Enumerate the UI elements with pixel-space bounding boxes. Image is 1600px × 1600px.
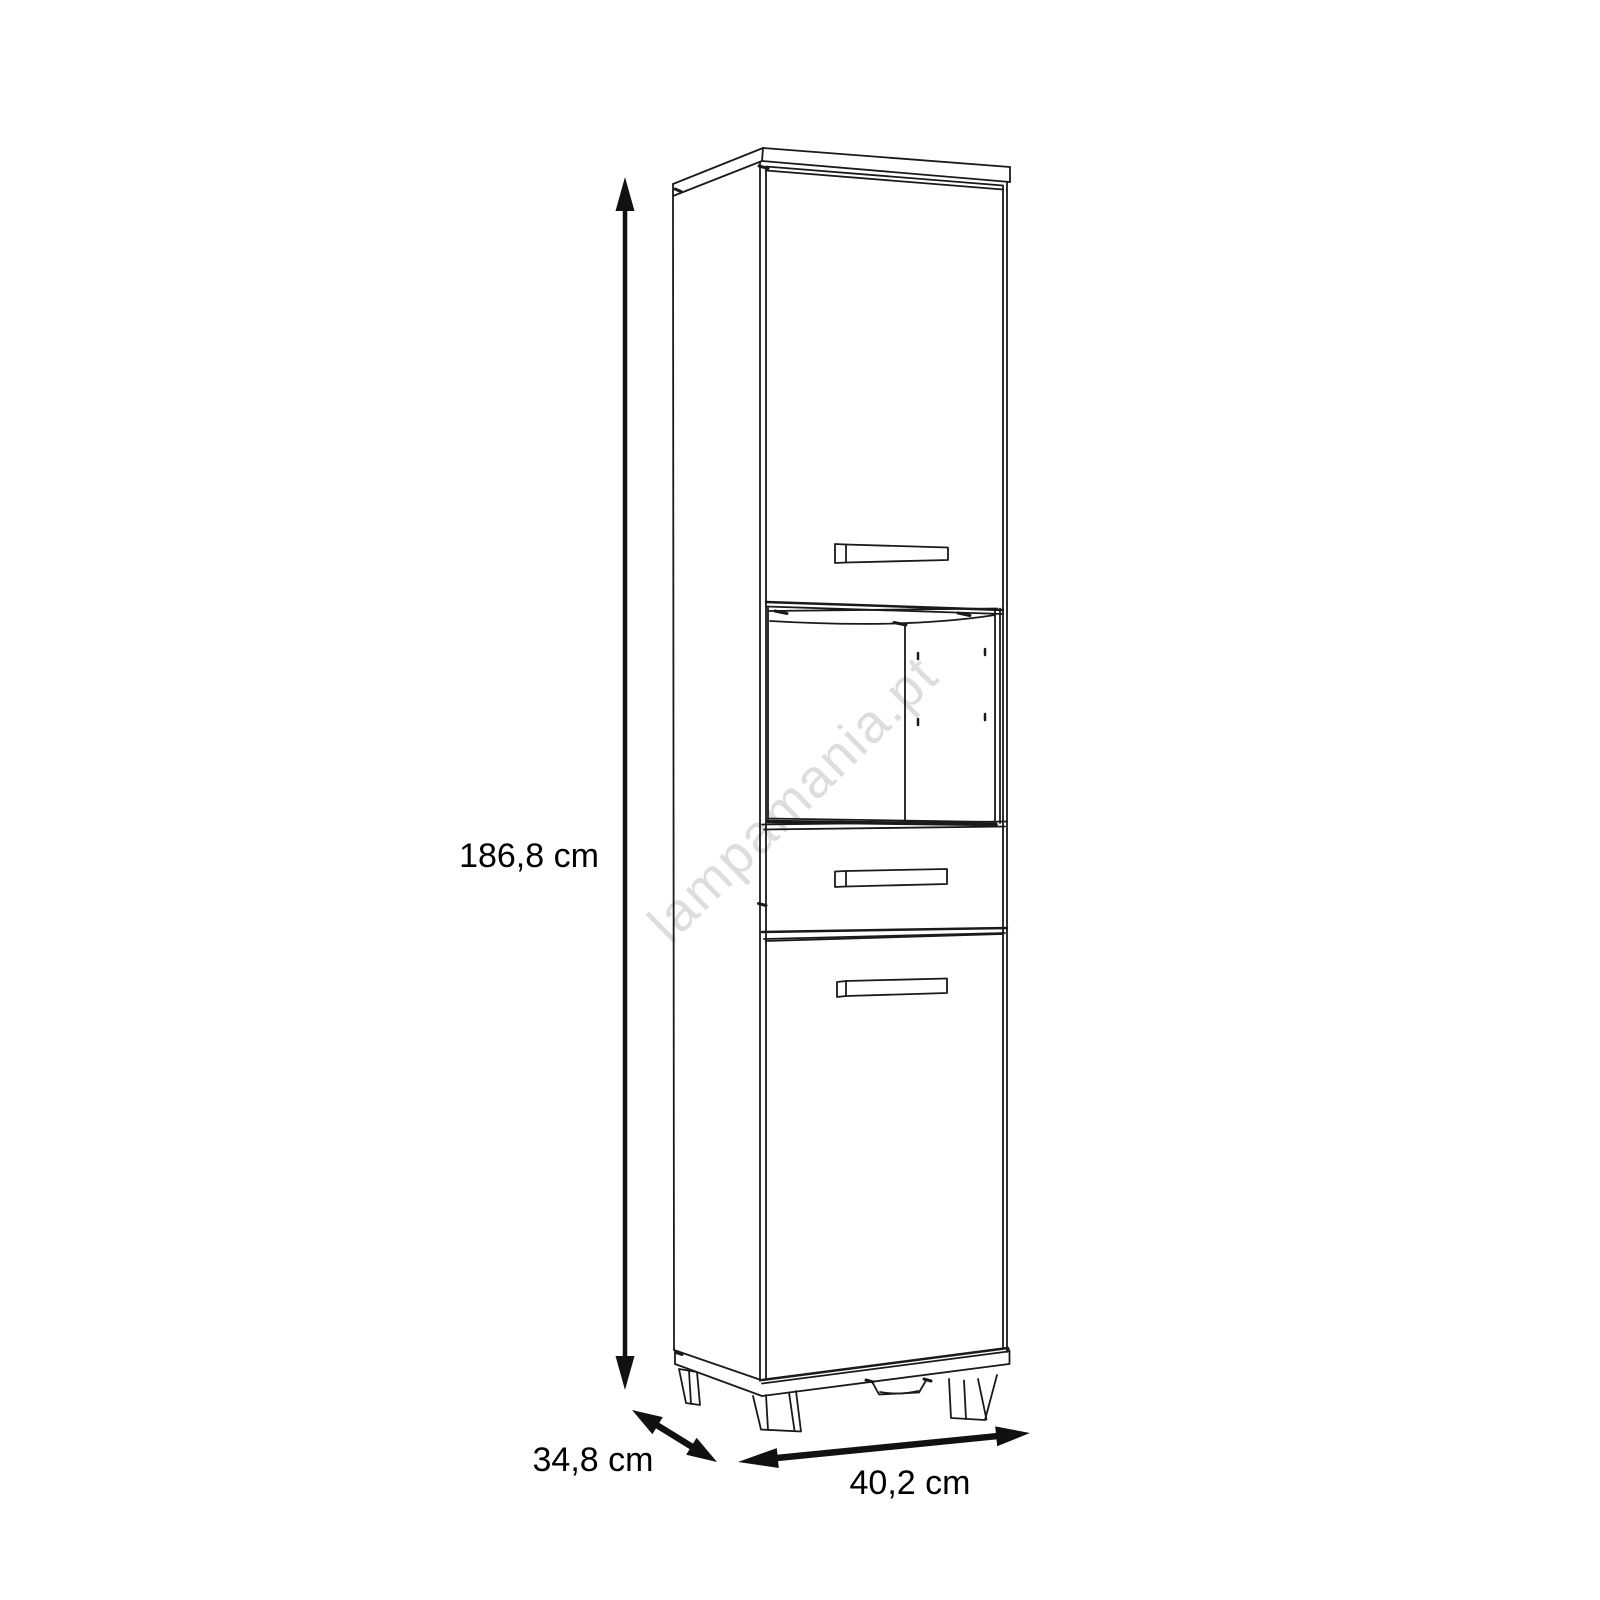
furniture-dimension-diagram: lampamania.pt — [0, 0, 1600, 1600]
depth-dimension-label: 34,8 cm — [533, 1441, 654, 1479]
height-dimension-label: 186,8 cm — [459, 837, 599, 875]
arrow-left-icon — [738, 1448, 779, 1468]
upper-door — [759, 166, 1003, 614]
drawer — [759, 822, 1008, 940]
watermark-text: lampamania.pt — [637, 645, 950, 954]
foot-right — [949, 1375, 997, 1420]
foot-back-left — [679, 1369, 700, 1405]
arrow-down-right-icon — [686, 1438, 717, 1462]
lower-door-handle — [837, 979, 947, 998]
width-arrow — [738, 1426, 1030, 1468]
drawer-handle — [835, 869, 947, 887]
arrow-down-icon — [616, 1356, 635, 1390]
upper-door-handle — [835, 544, 948, 563]
lower-door — [762, 934, 1008, 1380]
arrow-right-icon — [995, 1426, 1030, 1446]
foot-front-left — [753, 1391, 801, 1432]
arrow-up-left-icon — [632, 1410, 663, 1434]
cabinet-feet — [679, 1369, 997, 1432]
width-dimension-label: 40,2 cm — [850, 1464, 971, 1502]
cabinet-side-panel — [673, 196, 761, 1380]
arrow-up-icon — [616, 177, 635, 211]
height-arrow — [616, 177, 635, 1390]
cabinet-dimension-drawing: lampamania.pt — [0, 0, 1600, 1600]
